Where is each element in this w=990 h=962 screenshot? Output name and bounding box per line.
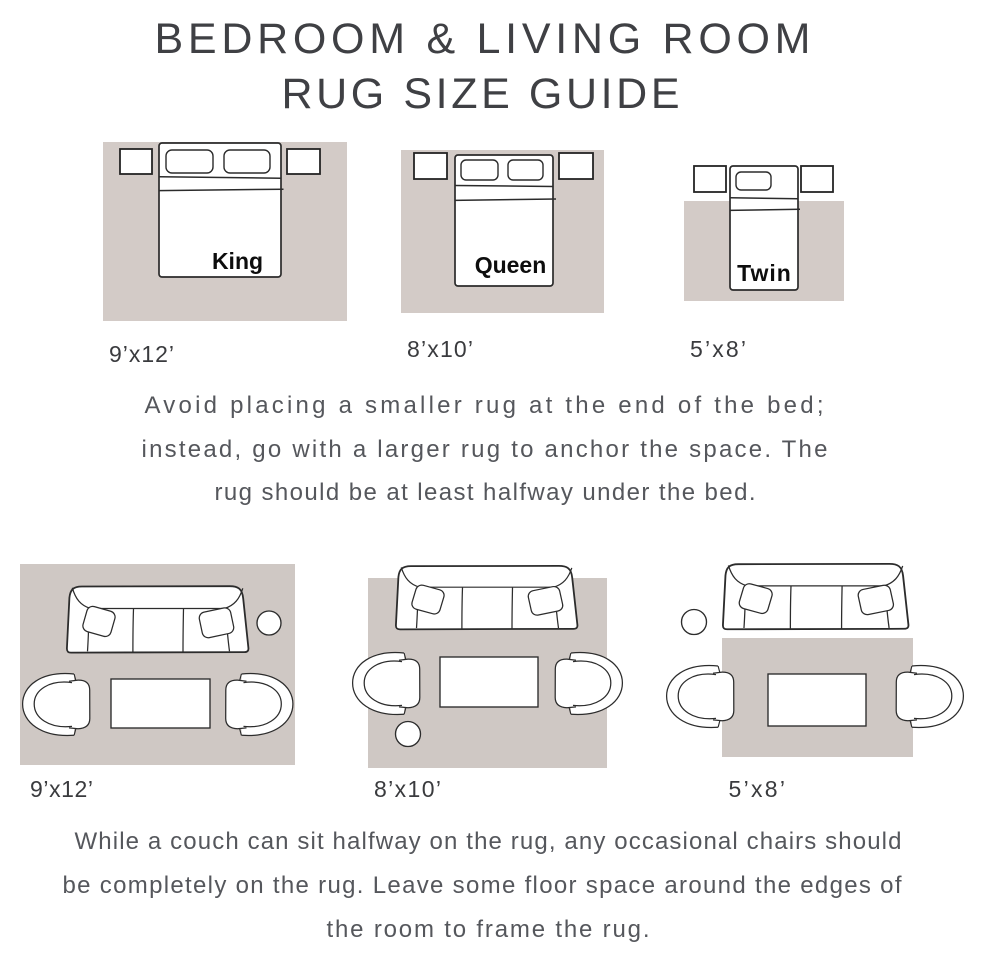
svg-text:9’x12’: 9’x12’ [30,776,93,802]
svg-text:While a couch can sit halfway: While a couch can sit halfway on the rug… [75,828,902,855]
svg-text:RUG SIZE GUIDE: RUG SIZE GUIDE [282,70,680,118]
svg-text:5’x8’: 5’x8’ [690,336,746,362]
svg-text:8’x10’: 8’x10’ [407,336,473,362]
svg-text:5’x8’: 5’x8’ [729,776,786,802]
svg-text:King: King [212,248,263,274]
svg-text:be completely on the rug. Leav: be completely on the rug. Leave some flo… [63,872,902,899]
svg-text:Queen: Queen [475,252,547,278]
svg-text:instead, go with a larger rug: instead, go with a larger rug to anchor … [142,436,828,463]
svg-text:8’x10’: 8’x10’ [374,776,441,802]
svg-text:Twin: Twin [737,260,792,286]
svg-text:rug should be at least halfway: rug should be at least halfway under the… [215,479,756,506]
svg-text:9’x12’: 9’x12’ [109,341,174,367]
